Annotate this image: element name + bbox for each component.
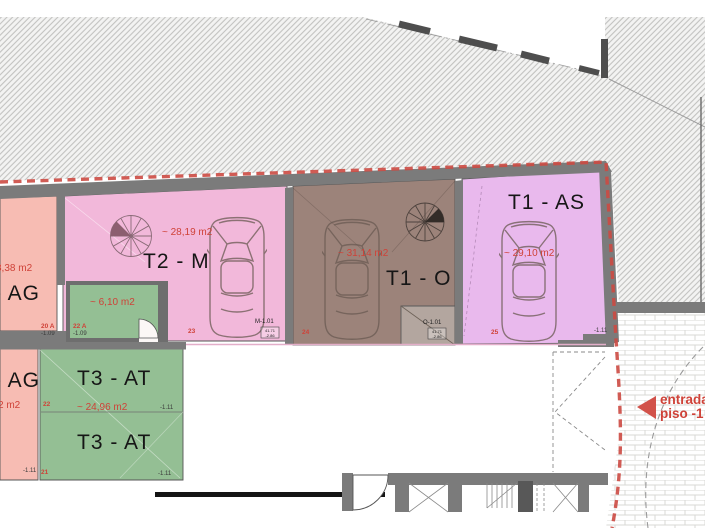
wall-pink-brown [285, 187, 293, 345]
area-label-t1o: ~ 31,14 m2 [338, 249, 388, 259]
wall-band-a [0, 331, 66, 342]
stall-number: 25 [491, 330, 498, 337]
area-label-t3at: ~ 24,96 m2 [77, 403, 127, 413]
area-label-t2m: ~ 28,19 m2 [162, 228, 212, 238]
wall-salmon-pink [57, 196, 65, 285]
area-label-ag-lower: 2 m2 [0, 401, 20, 411]
ramp-marking [553, 352, 605, 472]
unit-region-ag-lower [0, 348, 38, 480]
wall-brown-purple [455, 180, 463, 345]
area-label-ag-upper: 8,38 m2 [0, 264, 32, 274]
stall-number: 24 [302, 330, 309, 337]
unit-label-t2m: T2 - M [143, 251, 210, 272]
entrance-label-line1: entrada [660, 393, 705, 407]
level-label: -1.11 [160, 405, 173, 411]
wall-purple-bottom-2 [558, 340, 585, 347]
svg-text:-2.86: -2.86 [432, 334, 442, 339]
area-label-t1as: ~ 29,10 m2 [504, 249, 554, 259]
wall-band-b [0, 342, 186, 350]
spiral-stair-icon [406, 203, 444, 241]
area-label-storage: ~ 6,10 m2 [90, 298, 135, 308]
level-label: -1.09 [73, 331, 87, 337]
stall-tag: M-1.01 [255, 319, 274, 325]
stall-number: 22 [43, 402, 50, 409]
unit-label-ag-upper: - AG [0, 283, 40, 304]
floor-plan-canvas: 41.71 -2.86 41.71 -2.86 8,38 m2 - AG 20 … [0, 0, 705, 528]
entrance-label: entrada piso -1 [660, 393, 705, 421]
unit-label-t1o: T1 - O [386, 268, 452, 289]
level-label: -1.09 [41, 331, 55, 337]
unit-label-t1as: T1 - AS [508, 192, 585, 213]
level-label: -1.11 [158, 471, 171, 477]
level-label: -1.11 [23, 468, 36, 474]
stall-tag: O-1.01 [423, 320, 441, 326]
svg-text:-2.86: -2.86 [265, 333, 275, 338]
stair-core-structure [342, 473, 608, 512]
entrance-label-line2: piso -1 [660, 407, 705, 421]
level-label: -1.11 [594, 328, 607, 334]
stall-number: 23 [188, 329, 195, 336]
unit-label-ag-lower: - AG [0, 370, 40, 391]
unit-label-t3at-bottom: T3 - AT [77, 432, 151, 453]
stall-number: 21 [41, 470, 48, 477]
door-arc [353, 475, 388, 510]
unit-label-t3at-top: T3 - AT [77, 368, 151, 389]
pavement-top-wall [613, 302, 705, 313]
